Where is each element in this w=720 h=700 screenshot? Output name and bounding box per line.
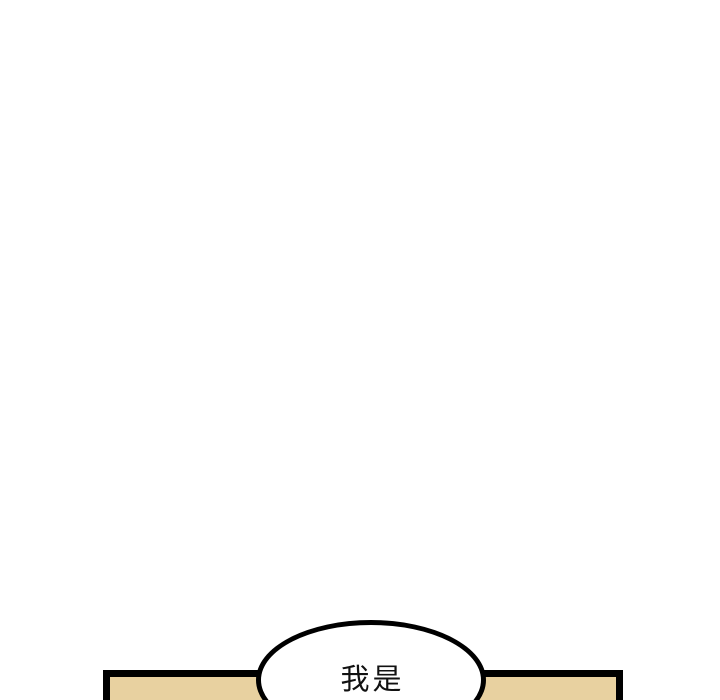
speech-bubble-text: 我是 [340, 666, 404, 695]
speech-bubble: 我是 [256, 620, 486, 700]
comic-page: 我是 [0, 0, 720, 700]
